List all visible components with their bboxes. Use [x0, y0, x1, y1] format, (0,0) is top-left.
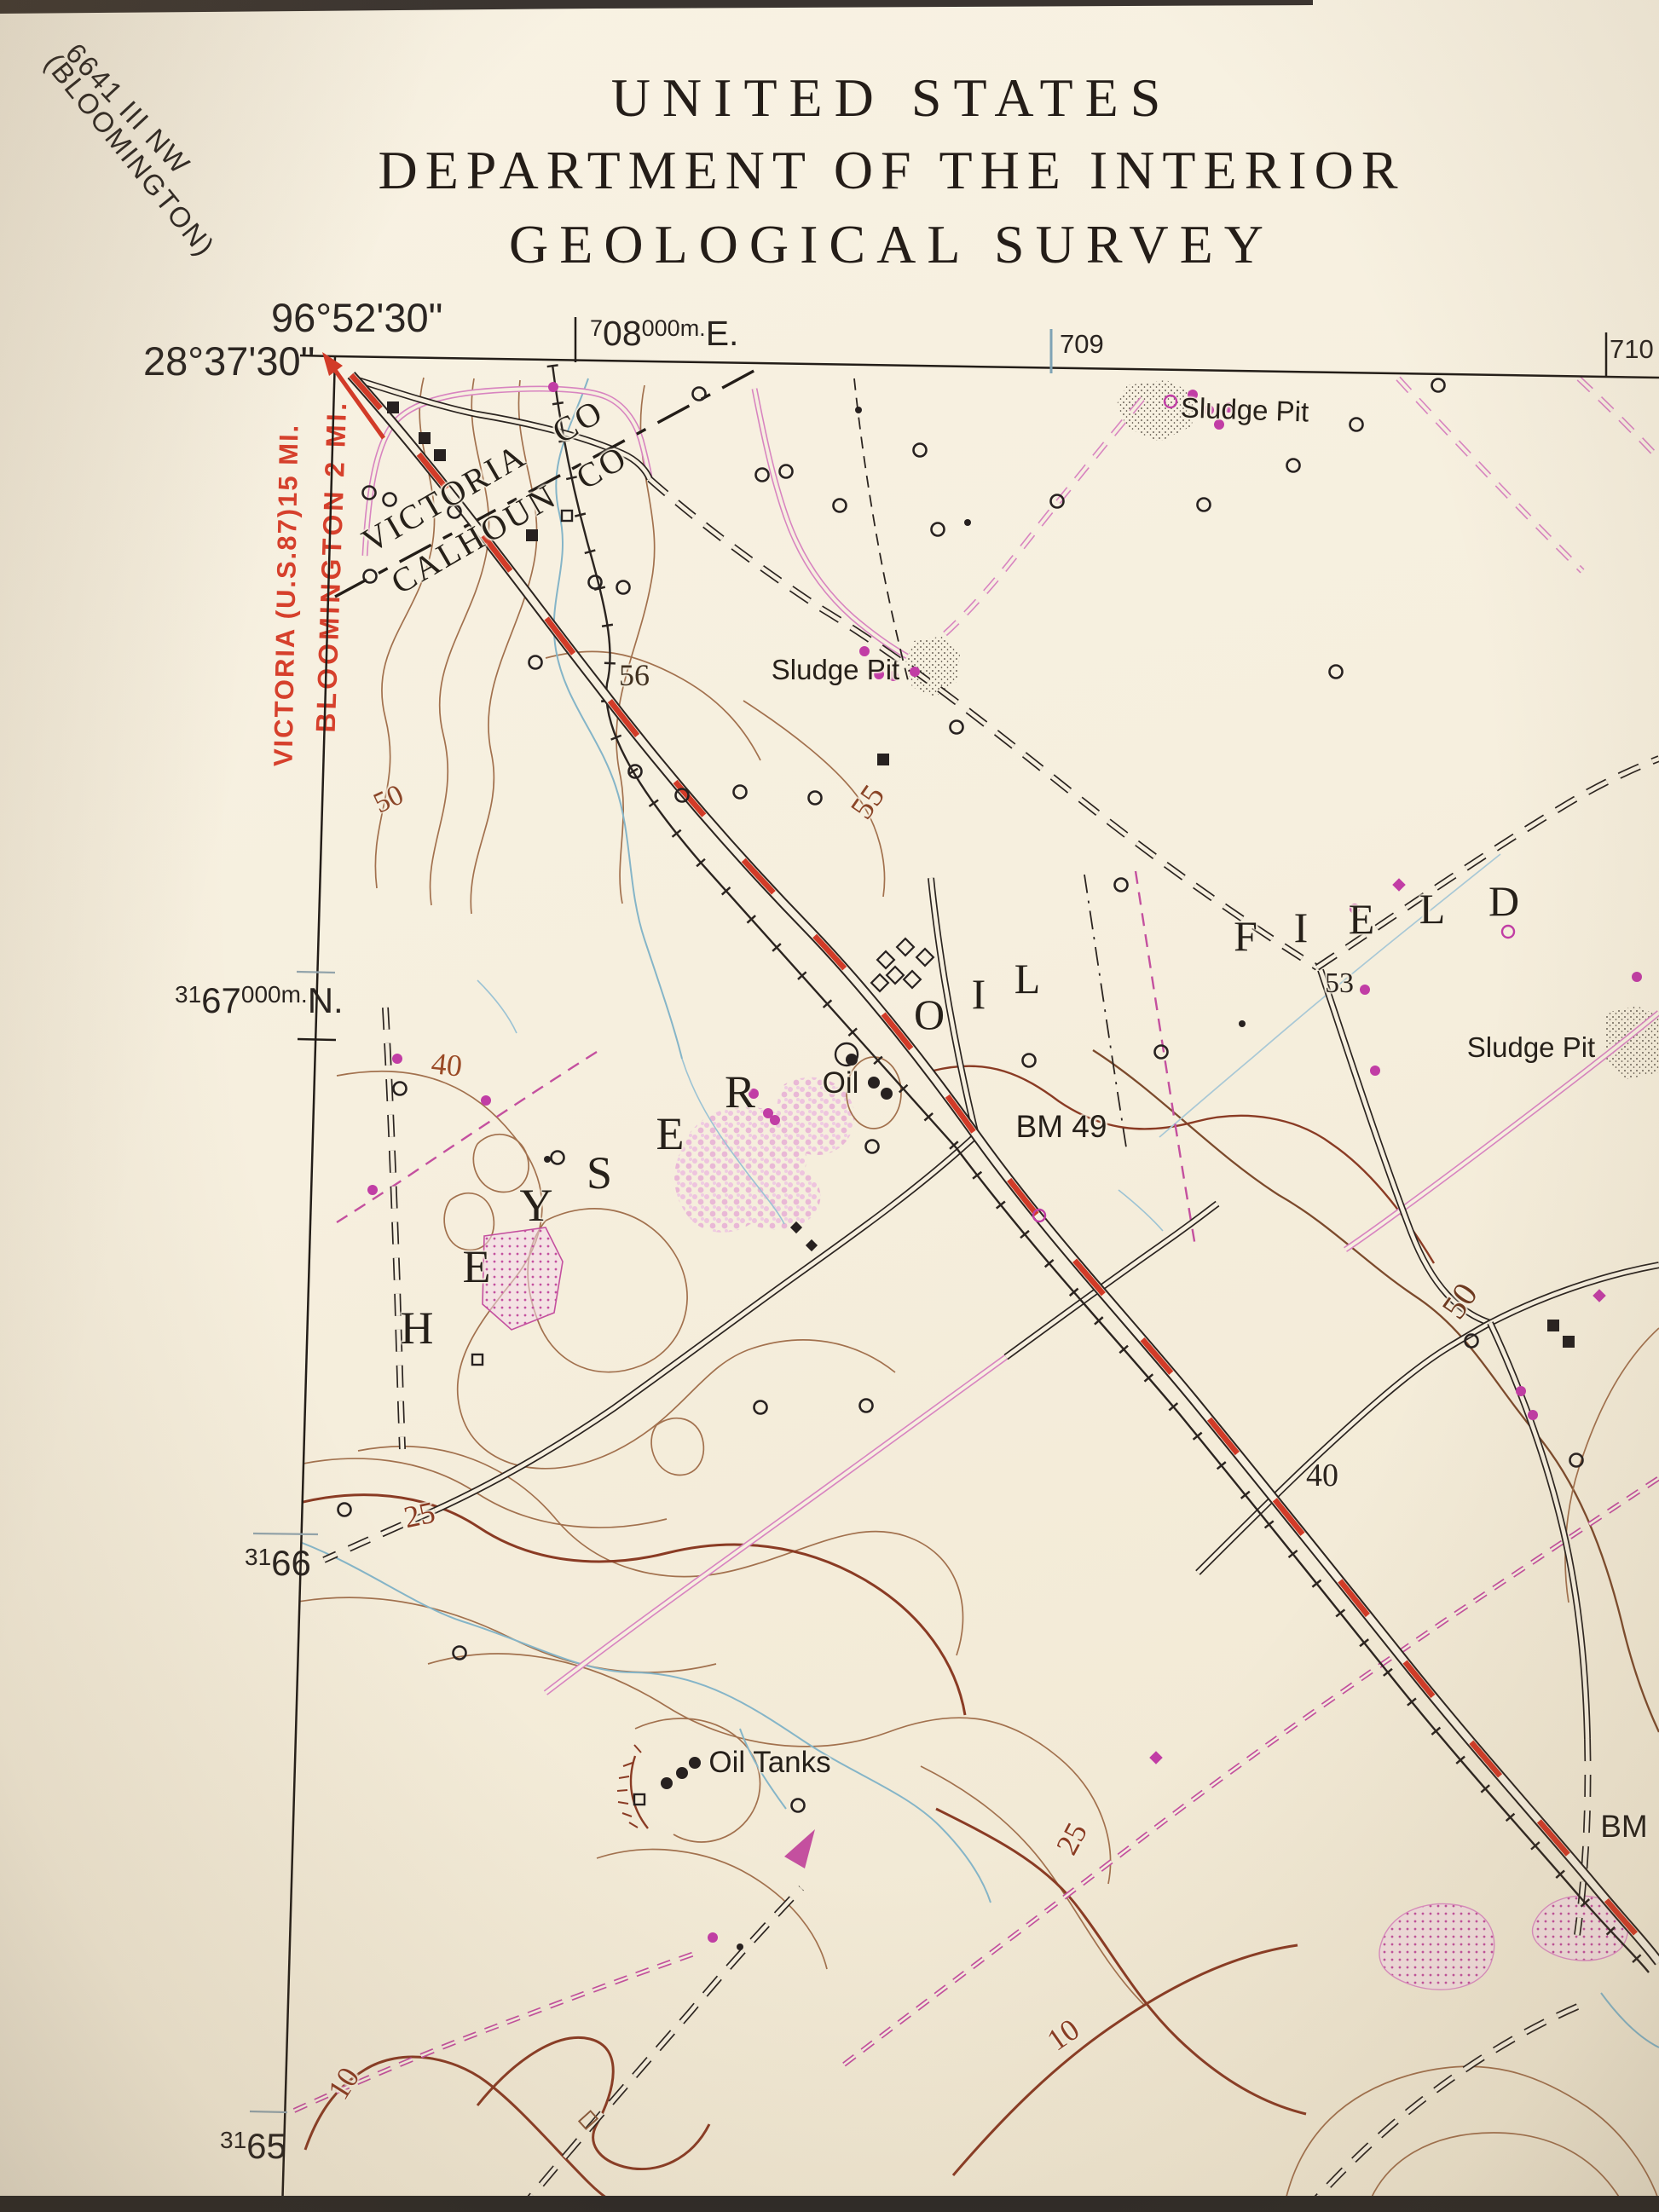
map-content [284, 365, 1659, 2212]
map-canvas [0, 0, 1659, 2212]
grid-tick-3166 [253, 1533, 318, 1534]
grid-tick-3167 [298, 1039, 336, 1040]
sludge-pit-areas [905, 380, 1659, 1079]
grid-tick-3165 [250, 2111, 287, 2112]
pipeline-arrow [784, 1829, 815, 1868]
grid-tick-left-blue [297, 972, 335, 973]
highway-us87 [351, 375, 1659, 1962]
photo-edge-bottom [0, 2196, 1659, 2212]
marsh-pink-areas [674, 1077, 854, 1233]
index-contour-lines [284, 1066, 1434, 2212]
usgs-topo-map-photo: UNITED STATES DEPARTMENT OF THE INTERIOR… [0, 0, 1659, 2212]
streams [284, 378, 1659, 2047]
